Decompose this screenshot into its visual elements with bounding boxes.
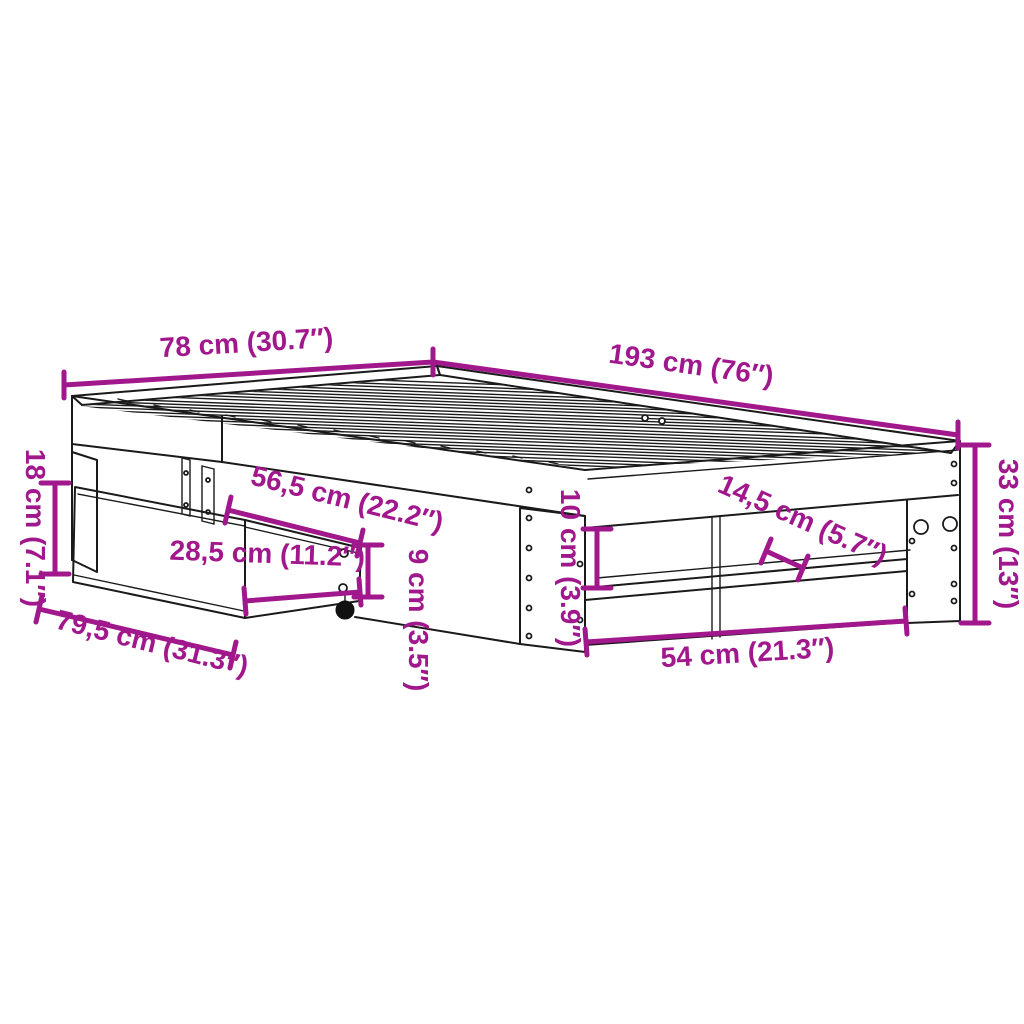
dim-label-drawer-top-depth: 56,5 cm (22.2″)	[248, 460, 447, 538]
dim-line-frame-height	[961, 445, 989, 623]
bed-frame-line-art	[55, 366, 965, 652]
dim-label-head-width: 78 cm (30.7″)	[159, 322, 334, 364]
side-bottom-edge	[355, 617, 520, 644]
center-support-leg	[712, 516, 720, 639]
dim-label-drawer-side-depth: 28,5 cm (11.2″)	[169, 535, 366, 573]
dim-label-shelf-gap: 10 cm (3.9″)	[555, 489, 586, 647]
diagram-canvas: 78 cm (30.7″) 193 cm (76″) 18 cm (7.1″) …	[0, 0, 1024, 1024]
headboard-post	[72, 452, 97, 572]
dim-label-frame-height: 33 cm (13″)	[993, 459, 1024, 609]
dim-label-drawer-side-height: 9 cm (3.5″)	[403, 549, 434, 692]
dim-label-drawer-front-width: 79,5 cm (31.3″)	[53, 604, 252, 682]
dim-label-shelf-depth: 14,5 cm (5.7″)	[714, 468, 892, 570]
dim-line-shelf-gap	[583, 529, 611, 588]
bed-frame-technical-drawing: 78 cm (30.7″) 193 cm (76″) 18 cm (7.1″) …	[0, 0, 1024, 1024]
dim-label-drawer-front-height: 18 cm (7.1″)	[20, 449, 51, 607]
caster-wheel	[336, 601, 354, 619]
dim-label-frame-length: 193 cm (76″)	[607, 338, 776, 392]
